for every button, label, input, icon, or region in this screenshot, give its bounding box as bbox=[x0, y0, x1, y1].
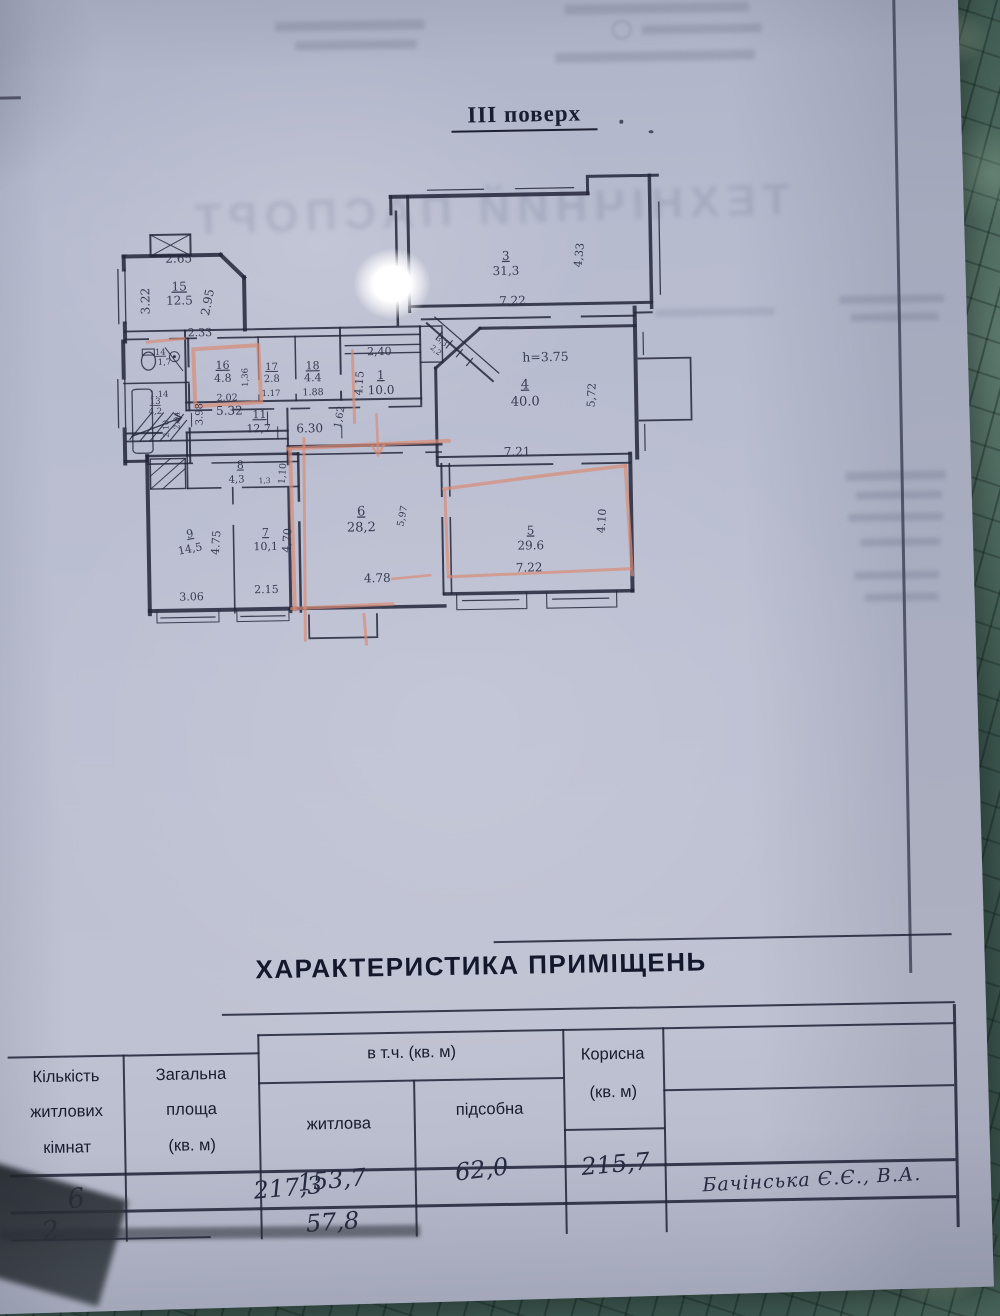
header-total-area: Загальна площа (кв. м) bbox=[130, 1056, 254, 1165]
table-line bbox=[258, 1077, 564, 1084]
ghost-text-bar bbox=[851, 312, 939, 322]
cell-useful-row1: 215,7 bbox=[559, 1145, 673, 1183]
plan-label: 5,72 bbox=[585, 383, 599, 408]
table-line bbox=[257, 1022, 955, 1036]
plan-label: 7.22 bbox=[499, 294, 526, 308]
plan-label: 14 bbox=[155, 348, 166, 358]
ghost-text-bar bbox=[275, 19, 425, 32]
table-line bbox=[564, 1127, 665, 1131]
table-line bbox=[663, 1084, 954, 1091]
plan-label: 31,3 bbox=[492, 264, 519, 278]
plan-label: 12,7 bbox=[246, 422, 271, 435]
plan-label: 1,62 bbox=[333, 405, 348, 429]
ghost-text-bar bbox=[854, 570, 939, 579]
plan-label: 16 bbox=[215, 359, 229, 372]
plan-label: 8 bbox=[237, 458, 244, 471]
header-useful: Корисна (кв. м) bbox=[565, 1035, 660, 1113]
plan-label: 5 bbox=[527, 523, 535, 537]
plan-label: 3 bbox=[502, 249, 510, 263]
table-line bbox=[494, 933, 952, 943]
table-title: ХАРАКТЕРИСТИКА ПРИМІЩЕНЬ bbox=[221, 946, 741, 986]
plan-label: 1 bbox=[377, 368, 385, 382]
plan-label: 28,2 bbox=[347, 520, 376, 536]
page-frame-line bbox=[892, 0, 912, 973]
plan-label: 13 bbox=[150, 397, 161, 407]
plan-label: 4,33 bbox=[571, 242, 586, 268]
plan-label: 14,5 bbox=[177, 540, 204, 557]
plan-label: 2.95 bbox=[198, 288, 217, 317]
ghost-text-bar bbox=[564, 2, 749, 15]
cell-auxiliary-row1: 62,0 bbox=[428, 1149, 535, 1189]
page-frame-corner bbox=[0, 96, 21, 99]
plan-label: 5,97 bbox=[395, 505, 410, 528]
plan-label: 2.10 bbox=[162, 420, 171, 438]
plan-label: 5.32 bbox=[216, 403, 243, 417]
ghost-text-bar bbox=[848, 512, 943, 522]
plan-label: 2,40 bbox=[367, 345, 392, 358]
plan-label: 1.88 bbox=[302, 387, 323, 398]
ghost-text-bar bbox=[856, 490, 942, 499]
plan-label: 2.33 bbox=[188, 326, 213, 339]
owner-signature: Бачінська Є.Є., В.А. bbox=[671, 1161, 952, 1198]
plan-label: 17 bbox=[265, 362, 278, 373]
plan-label: 2.94 bbox=[172, 412, 181, 430]
ghost-text-bar bbox=[295, 39, 417, 50]
cell-living-row1: 153,7 bbox=[275, 1161, 389, 1199]
plan-label: 4.8 bbox=[214, 372, 232, 385]
table-line bbox=[10, 1195, 956, 1214]
plan-label: 2.8 bbox=[264, 374, 280, 385]
plan-label: 12.5 bbox=[166, 293, 193, 307]
scanned-document-photo: { "document": { "floor_title": "III пове… bbox=[0, 0, 1000, 1235]
ghost-text-bar bbox=[642, 23, 762, 34]
plan-label: 4.4 bbox=[304, 371, 322, 384]
plan-label: 2.02 bbox=[216, 393, 237, 404]
plan-label: 1,36 bbox=[241, 368, 251, 387]
ink-speck bbox=[649, 130, 654, 133]
plan-label: 3.98 bbox=[194, 403, 205, 425]
plan-label: 2.65 bbox=[165, 251, 192, 265]
header-auxiliary: підсобна bbox=[418, 1099, 560, 1121]
ink-speck bbox=[619, 120, 623, 124]
plan-label: 11 bbox=[252, 408, 266, 421]
plan-label: 7 bbox=[262, 526, 269, 539]
plan-label: 10,1 bbox=[253, 540, 278, 553]
plan-label: 4.75 bbox=[209, 530, 224, 555]
header-including: в т.ч. (кв. м) bbox=[262, 1041, 560, 1066]
plan-label: 7.22 bbox=[516, 560, 543, 574]
plan-label: 4,70 bbox=[280, 528, 295, 553]
plan-label: 6 bbox=[357, 504, 366, 519]
plan-label: 3.22 bbox=[138, 288, 152, 315]
plan-label: 6.30 bbox=[296, 421, 323, 435]
document-content: ТЕХНІЧНИЙ ПАСПОРТ III поверх bbox=[0, 0, 1000, 1244]
plan-label: 1.17 bbox=[262, 389, 281, 399]
plan-label: 4 bbox=[521, 377, 530, 392]
plan-label: 2.15 bbox=[254, 583, 279, 596]
ghost-text-bar bbox=[555, 49, 755, 62]
floor-title: III поверх bbox=[451, 100, 598, 133]
plan-label: h=3.75 bbox=[522, 349, 569, 365]
plan-label: 4.10 bbox=[595, 508, 610, 533]
plan-label: 4.78 bbox=[364, 571, 391, 585]
table-line bbox=[413, 1080, 418, 1237]
flash-reflection bbox=[341, 237, 443, 331]
sink-drain bbox=[173, 356, 175, 358]
plan-label: 9 bbox=[185, 527, 194, 541]
plan-label: 4,3 bbox=[229, 474, 245, 485]
table-line bbox=[222, 1001, 955, 1016]
plan-label: 4.15 bbox=[352, 370, 367, 395]
plan-label: 7.21 bbox=[504, 444, 531, 458]
floor-plan: 2.653.221512.52.952.33141,71.14134,22.10… bbox=[87, 161, 705, 657]
plan-label: 1,10 bbox=[277, 463, 289, 485]
plan-label: 1,3 bbox=[259, 476, 271, 485]
header-living: житлова bbox=[267, 1114, 411, 1136]
plan-label: 4,2 bbox=[149, 407, 163, 417]
plan-label: 3.06 bbox=[179, 590, 204, 603]
plan-label: 29.6 bbox=[517, 538, 544, 552]
ghost-text-bar bbox=[839, 294, 944, 304]
header-rooms-count: Кількість житлових кімнат bbox=[14, 1059, 120, 1167]
ghost-stamp-circle bbox=[612, 20, 632, 40]
ghost-text-bar bbox=[846, 470, 946, 481]
plan-label: 15 bbox=[171, 279, 187, 293]
plan-label: 10.0 bbox=[368, 383, 395, 397]
table-line bbox=[953, 1004, 959, 1227]
plan-label: 40.0 bbox=[511, 394, 540, 410]
plan-label: 1,7 bbox=[158, 358, 172, 368]
